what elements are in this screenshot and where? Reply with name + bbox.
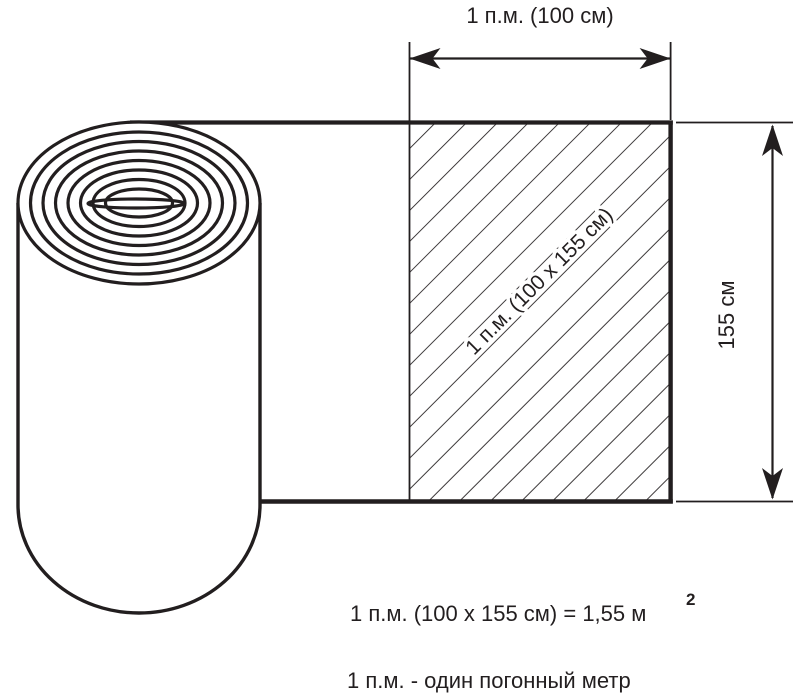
side-dimension: 155 см: [714, 125, 783, 500]
diagram-canvas: 1 п.м. (100 см) 155 см 1 п.м. (100 х 155…: [0, 0, 799, 700]
equation-text: 1 п.м. (100 х 155 см) = 1,55 м: [350, 601, 646, 626]
legend: 1 п.м. (100 х 155 см) = 1,55 м 2 1 п.м. …: [347, 590, 695, 693]
equation-superscript: 2: [686, 590, 695, 609]
side-dimension-label: 155 см: [714, 281, 739, 350]
top-dimension-label: 1 п.м. (100 см): [466, 3, 613, 28]
roll-spiral-end: [18, 122, 260, 284]
fabric-roll: [18, 122, 260, 613]
linear-meter-diagram: 1 п.м. (100 см) 155 см 1 п.м. (100 х 155…: [0, 0, 799, 700]
definition-text: 1 п.м. - один погонный метр: [347, 668, 631, 693]
top-dimension: 1 п.м. (100 см): [410, 3, 671, 69]
hatched-area: [410, 124, 671, 500]
